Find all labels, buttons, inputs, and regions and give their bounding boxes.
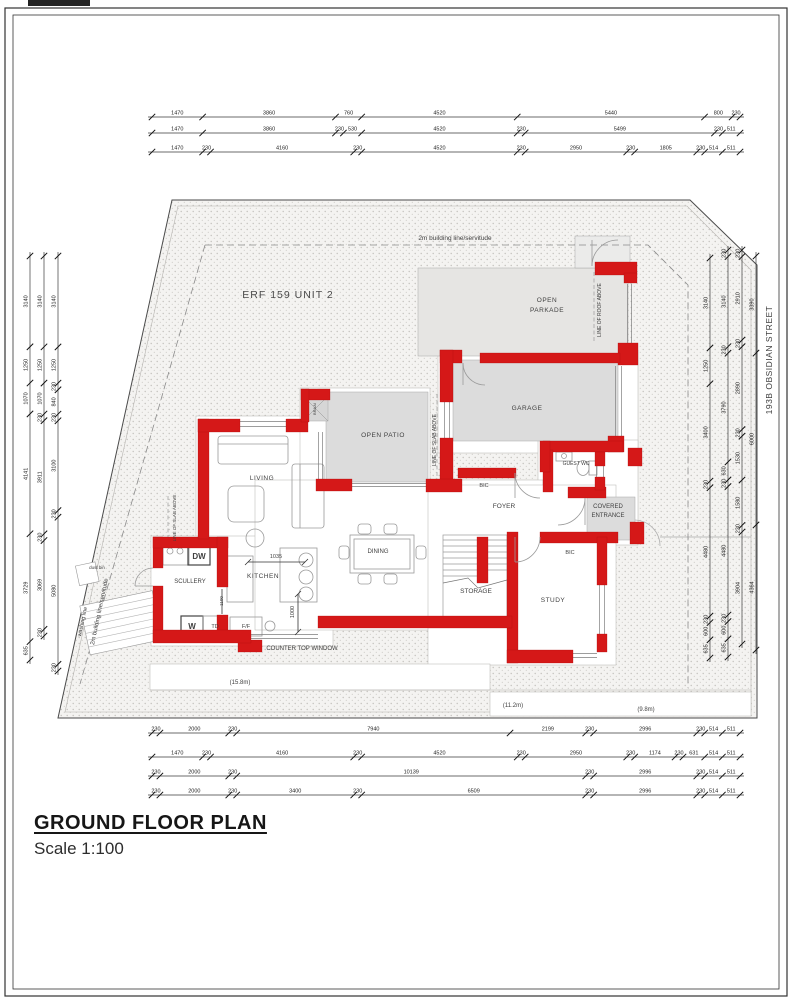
svg-text:2996: 2996: [639, 770, 651, 776]
dim-1000: 1000: [290, 606, 296, 618]
room-kitchen: KITCHEN: [247, 573, 279, 580]
svg-text:3140: 3140: [722, 295, 728, 307]
drawing-sheet: 1470386076045205440800230147038602305304…: [0, 0, 792, 1000]
svg-text:511: 511: [727, 789, 736, 795]
svg-text:230: 230: [696, 770, 705, 776]
svg-text:635: 635: [722, 643, 728, 652]
svg-text:1250: 1250: [38, 359, 44, 371]
svg-text:230: 230: [722, 614, 728, 623]
room-scullery: SCULLERY: [174, 579, 206, 585]
svg-text:230: 230: [52, 382, 58, 391]
svg-text:230: 230: [38, 533, 44, 542]
room-covered-entrance-1: COVERED: [593, 504, 623, 510]
dim-chain-top-2: 1470386023053045202305499230511: [148, 127, 744, 137]
room-storage: STORAGE: [460, 588, 492, 595]
svg-text:4480: 4480: [722, 545, 728, 557]
svg-text:230: 230: [52, 413, 58, 422]
bic-garage-label: BIC: [479, 483, 488, 489]
svg-text:230: 230: [228, 770, 237, 776]
svg-text:3069: 3069: [38, 579, 44, 591]
svg-text:230: 230: [696, 789, 705, 795]
svg-text:3860: 3860: [263, 111, 275, 117]
width-9-8m: (9.8m): [637, 707, 654, 713]
svg-text:3400: 3400: [289, 789, 301, 795]
svg-text:600: 600: [704, 627, 710, 636]
svg-text:230: 230: [151, 770, 160, 776]
svg-text:230: 230: [151, 727, 160, 733]
svg-text:514: 514: [709, 146, 718, 152]
svg-text:631: 631: [689, 751, 698, 757]
svg-text:230: 230: [736, 339, 742, 348]
svg-text:1070: 1070: [24, 392, 30, 404]
svg-text:600: 600: [722, 626, 728, 635]
svg-text:514: 514: [709, 727, 718, 733]
svg-text:3729: 3729: [24, 582, 30, 594]
erf-label: ERF 159 UNIT 2: [242, 289, 333, 301]
dim-chain-bottom-3: 2302000230101392302996230514511: [148, 770, 744, 780]
svg-text:511: 511: [727, 727, 736, 733]
svg-text:530: 530: [348, 127, 357, 133]
svg-text:3904: 3904: [736, 582, 742, 594]
dim-1100: 1100: [219, 596, 224, 606]
svg-text:230: 230: [52, 509, 58, 518]
svg-text:2910: 2910: [736, 292, 742, 304]
svg-text:230: 230: [722, 345, 728, 354]
svg-text:230: 230: [704, 480, 710, 489]
room-study: STUDY: [541, 597, 566, 604]
svg-text:230: 230: [52, 663, 58, 672]
svg-text:3140: 3140: [52, 295, 58, 307]
svg-text:1530: 1530: [736, 452, 742, 464]
svg-text:6509: 6509: [468, 789, 480, 795]
line-of-slab-above-patio-label: LINE OF SLAB ABOVE: [432, 413, 438, 466]
svg-text:4160: 4160: [276, 751, 288, 757]
svg-text:2000: 2000: [188, 727, 200, 733]
dim-chain-left-3: 3140125023084023031002305080230: [52, 252, 62, 675]
dim-chain-top-1: 1470386076045205440800230: [148, 111, 744, 121]
svg-text:2199: 2199: [542, 727, 554, 733]
line-of-slab-above-left-label: LINE OF SLAB ABOVE: [172, 495, 177, 542]
svg-text:230: 230: [626, 751, 635, 757]
svg-text:230: 230: [696, 727, 705, 733]
svg-text:230: 230: [151, 789, 160, 795]
svg-text:4520: 4520: [433, 111, 445, 117]
svg-text:230: 230: [517, 751, 526, 757]
svg-text:2950: 2950: [570, 751, 582, 757]
bic-study-label: BIC: [565, 550, 574, 556]
svg-text:230: 230: [585, 789, 594, 795]
svg-text:4520: 4520: [433, 127, 445, 133]
svg-text:3140: 3140: [24, 295, 30, 307]
svg-text:230: 230: [626, 146, 635, 152]
room-dining: DINING: [368, 549, 389, 555]
counter-top-window-label: COUNTER TOP WINDOW: [266, 646, 338, 652]
svg-text:230: 230: [517, 146, 526, 152]
svg-text:230: 230: [731, 111, 740, 117]
svg-text:230: 230: [353, 751, 362, 757]
svg-text:3400: 3400: [704, 426, 710, 438]
svg-text:4520: 4520: [433, 751, 445, 757]
dim-1035: 1035: [270, 554, 282, 560]
svg-text:760: 760: [344, 111, 353, 117]
svg-text:5499: 5499: [614, 127, 626, 133]
svg-text:230: 230: [38, 413, 44, 422]
dim-chain-left-1: 31401250107041413729635: [24, 252, 34, 664]
svg-text:230: 230: [585, 727, 594, 733]
dim-chain-top-3: 1470230416023045202302950230180523051451…: [148, 146, 744, 156]
svg-text:630: 630: [722, 466, 728, 475]
svg-text:230: 230: [736, 428, 742, 437]
svg-text:3390: 3390: [750, 298, 756, 310]
svg-text:230: 230: [228, 727, 237, 733]
room-foyer: FOYER: [493, 503, 516, 510]
svg-text:3140: 3140: [38, 295, 44, 307]
svg-text:2950: 2950: [570, 146, 582, 152]
line-of-roof-above-label: LINE OF ROOF ABOVE: [597, 283, 603, 337]
svg-text:511: 511: [727, 127, 736, 133]
svg-text:230: 230: [517, 127, 526, 133]
svg-text:2996: 2996: [639, 727, 651, 733]
svg-text:1250: 1250: [704, 360, 710, 372]
svg-text:4141: 4141: [24, 468, 30, 480]
svg-text:4480: 4480: [704, 546, 710, 558]
svg-text:2000: 2000: [188, 789, 200, 795]
svg-text:511: 511: [727, 770, 736, 776]
svg-text:230: 230: [722, 249, 728, 258]
svg-text:230: 230: [335, 127, 344, 133]
svg-text:4364: 4364: [750, 581, 756, 593]
svg-text:230: 230: [353, 146, 362, 152]
svg-text:5440: 5440: [605, 111, 617, 117]
appliance-td: TD: [211, 624, 218, 630]
room-open-patio: OPEN PATIO: [361, 432, 405, 439]
svg-text:511: 511: [727, 146, 736, 152]
svg-text:10139: 10139: [404, 770, 419, 776]
svg-text:6000: 6000: [750, 433, 756, 445]
svg-text:800: 800: [714, 111, 723, 117]
svg-text:635: 635: [24, 646, 30, 655]
room-garage: GARAGE: [512, 405, 543, 412]
garage-slab: [453, 360, 618, 441]
svg-text:230: 230: [674, 751, 683, 757]
svg-text:1470: 1470: [171, 146, 183, 152]
svg-text:1470: 1470: [171, 127, 183, 133]
plan-scale: Scale 1:100: [34, 839, 267, 859]
svg-text:1470: 1470: [171, 751, 183, 757]
svg-text:635: 635: [704, 644, 710, 653]
svg-text:3790: 3790: [722, 401, 728, 413]
svg-text:3911: 3911: [38, 471, 44, 483]
building-line-top-label: 2m building line/servitude: [418, 235, 492, 242]
svg-text:4160: 4160: [276, 146, 288, 152]
svg-text:514: 514: [709, 789, 718, 795]
svg-text:230: 230: [202, 146, 211, 152]
room-open-parkade-1: OPEN: [537, 297, 557, 304]
room-guest-wc: GUEST WC: [563, 461, 590, 467]
svg-text:1070: 1070: [38, 392, 44, 404]
dim-chain-bottom-2: 1470230416023045202302950230117423063151…: [148, 751, 744, 761]
svg-text:230: 230: [228, 789, 237, 795]
appliance-ff: F/F: [242, 624, 251, 630]
width-15-8m: (15.8m): [230, 680, 251, 686]
braai-label: BRAAI: [312, 403, 317, 415]
svg-text:1805: 1805: [660, 146, 672, 152]
street-label: 193B OBSIDIAN STREET: [764, 306, 774, 415]
svg-text:5080: 5080: [52, 585, 58, 597]
svg-text:2996: 2996: [639, 789, 651, 795]
svg-text:230: 230: [353, 789, 362, 795]
svg-text:230: 230: [736, 249, 742, 258]
svg-text:1470: 1470: [171, 111, 183, 117]
svg-text:230: 230: [736, 524, 742, 533]
svg-text:230: 230: [722, 479, 728, 488]
dim-chain-left-2: 31401250107023039112303069230: [38, 252, 48, 640]
svg-text:1250: 1250: [52, 359, 58, 371]
svg-text:230: 230: [202, 751, 211, 757]
appliance-w: W: [188, 622, 196, 631]
svg-text:511: 511: [727, 751, 736, 757]
svg-text:2000: 2000: [188, 770, 200, 776]
room-covered-entrance-2: ENTRANCE: [591, 513, 624, 519]
svg-text:4520: 4520: [433, 146, 445, 152]
svg-text:230: 230: [704, 615, 710, 624]
dim-chain-bottom-4: 2302000230340023065092302996230514511: [148, 789, 744, 799]
room-living: LIVING: [250, 475, 274, 482]
width-11-2m: (11.2m): [503, 703, 523, 709]
dim-chain-bottom-1: 2302000230794021992302996230514511: [148, 727, 744, 737]
svg-text:230: 230: [696, 146, 705, 152]
svg-text:7940: 7940: [367, 727, 379, 733]
svg-text:3100: 3100: [52, 460, 58, 472]
svg-text:3140: 3140: [704, 297, 710, 309]
svg-text:1250: 1250: [24, 359, 30, 371]
svg-text:2890: 2890: [736, 382, 742, 394]
appliance-dw: DW: [192, 552, 206, 561]
room-open-parkade-2: PARKADE: [530, 307, 564, 314]
svg-text:840: 840: [52, 397, 58, 406]
plan-title: GROUND FLOOR PLAN: [34, 812, 267, 835]
svg-text:230: 230: [585, 770, 594, 776]
svg-text:1580: 1580: [736, 497, 742, 509]
svg-text:3860: 3860: [263, 127, 275, 133]
svg-text:514: 514: [709, 751, 718, 757]
svg-text:230: 230: [714, 127, 723, 133]
dust-bin-label: dust bin: [89, 565, 105, 570]
title-block: GROUND FLOOR PLAN Scale 1:100: [34, 812, 267, 859]
svg-text:514: 514: [709, 770, 718, 776]
svg-text:230: 230: [38, 628, 44, 637]
svg-text:1174: 1174: [649, 751, 661, 757]
